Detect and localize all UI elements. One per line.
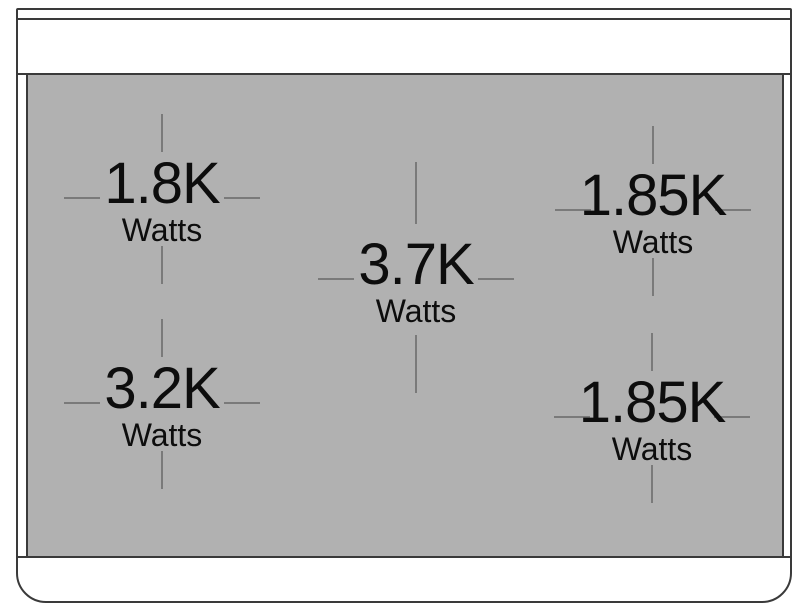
surface-bottom-trim-line bbox=[18, 556, 790, 558]
crosshair-tick-top bbox=[652, 126, 654, 164]
burner-label: 1.85K Watts bbox=[579, 374, 726, 466]
burner-unit-label: Watts bbox=[579, 432, 726, 466]
crosshair-tick-top bbox=[651, 333, 653, 371]
crosshair-tick-right bbox=[478, 278, 514, 280]
burner-label: 3.2K Watts bbox=[104, 360, 219, 452]
burner-power-label: 3.2K bbox=[104, 360, 219, 418]
cooktop-diagram: 1.8K Watts 1.85K Watts 3.7K Watts 3.2K W… bbox=[0, 0, 808, 616]
surface-top-trim-line bbox=[18, 73, 790, 75]
burner-power-label: 1.85K bbox=[579, 374, 726, 432]
burner-label: 3.7K Watts bbox=[358, 236, 473, 328]
burner-unit-label: Watts bbox=[580, 225, 727, 259]
burner-power-label: 1.85K bbox=[580, 167, 727, 225]
burner-power-label: 3.7K bbox=[358, 236, 473, 294]
crosshair-tick-top bbox=[161, 114, 163, 152]
burner-unit-label: Watts bbox=[358, 294, 473, 328]
crosshair-tick-top bbox=[161, 319, 163, 357]
crosshair-tick-right bbox=[224, 197, 260, 199]
crosshair-tick-bottom bbox=[161, 246, 163, 284]
crosshair-tick-right bbox=[224, 402, 260, 404]
burner-power-label: 1.8K bbox=[104, 155, 219, 213]
burner-unit-label: Watts bbox=[104, 213, 219, 247]
burner-label: 1.85K Watts bbox=[580, 167, 727, 259]
crosshair-tick-top bbox=[415, 162, 417, 224]
backguard-trim-line bbox=[18, 18, 790, 20]
crosshair-tick-bottom bbox=[161, 451, 163, 489]
burner-label: 1.8K Watts bbox=[104, 155, 219, 247]
crosshair-tick-left bbox=[318, 278, 354, 280]
crosshair-tick-left bbox=[64, 402, 100, 404]
burner-unit-label: Watts bbox=[104, 418, 219, 452]
crosshair-tick-bottom bbox=[651, 465, 653, 503]
crosshair-tick-left bbox=[64, 197, 100, 199]
crosshair-tick-bottom bbox=[652, 258, 654, 296]
crosshair-tick-bottom bbox=[415, 335, 417, 393]
